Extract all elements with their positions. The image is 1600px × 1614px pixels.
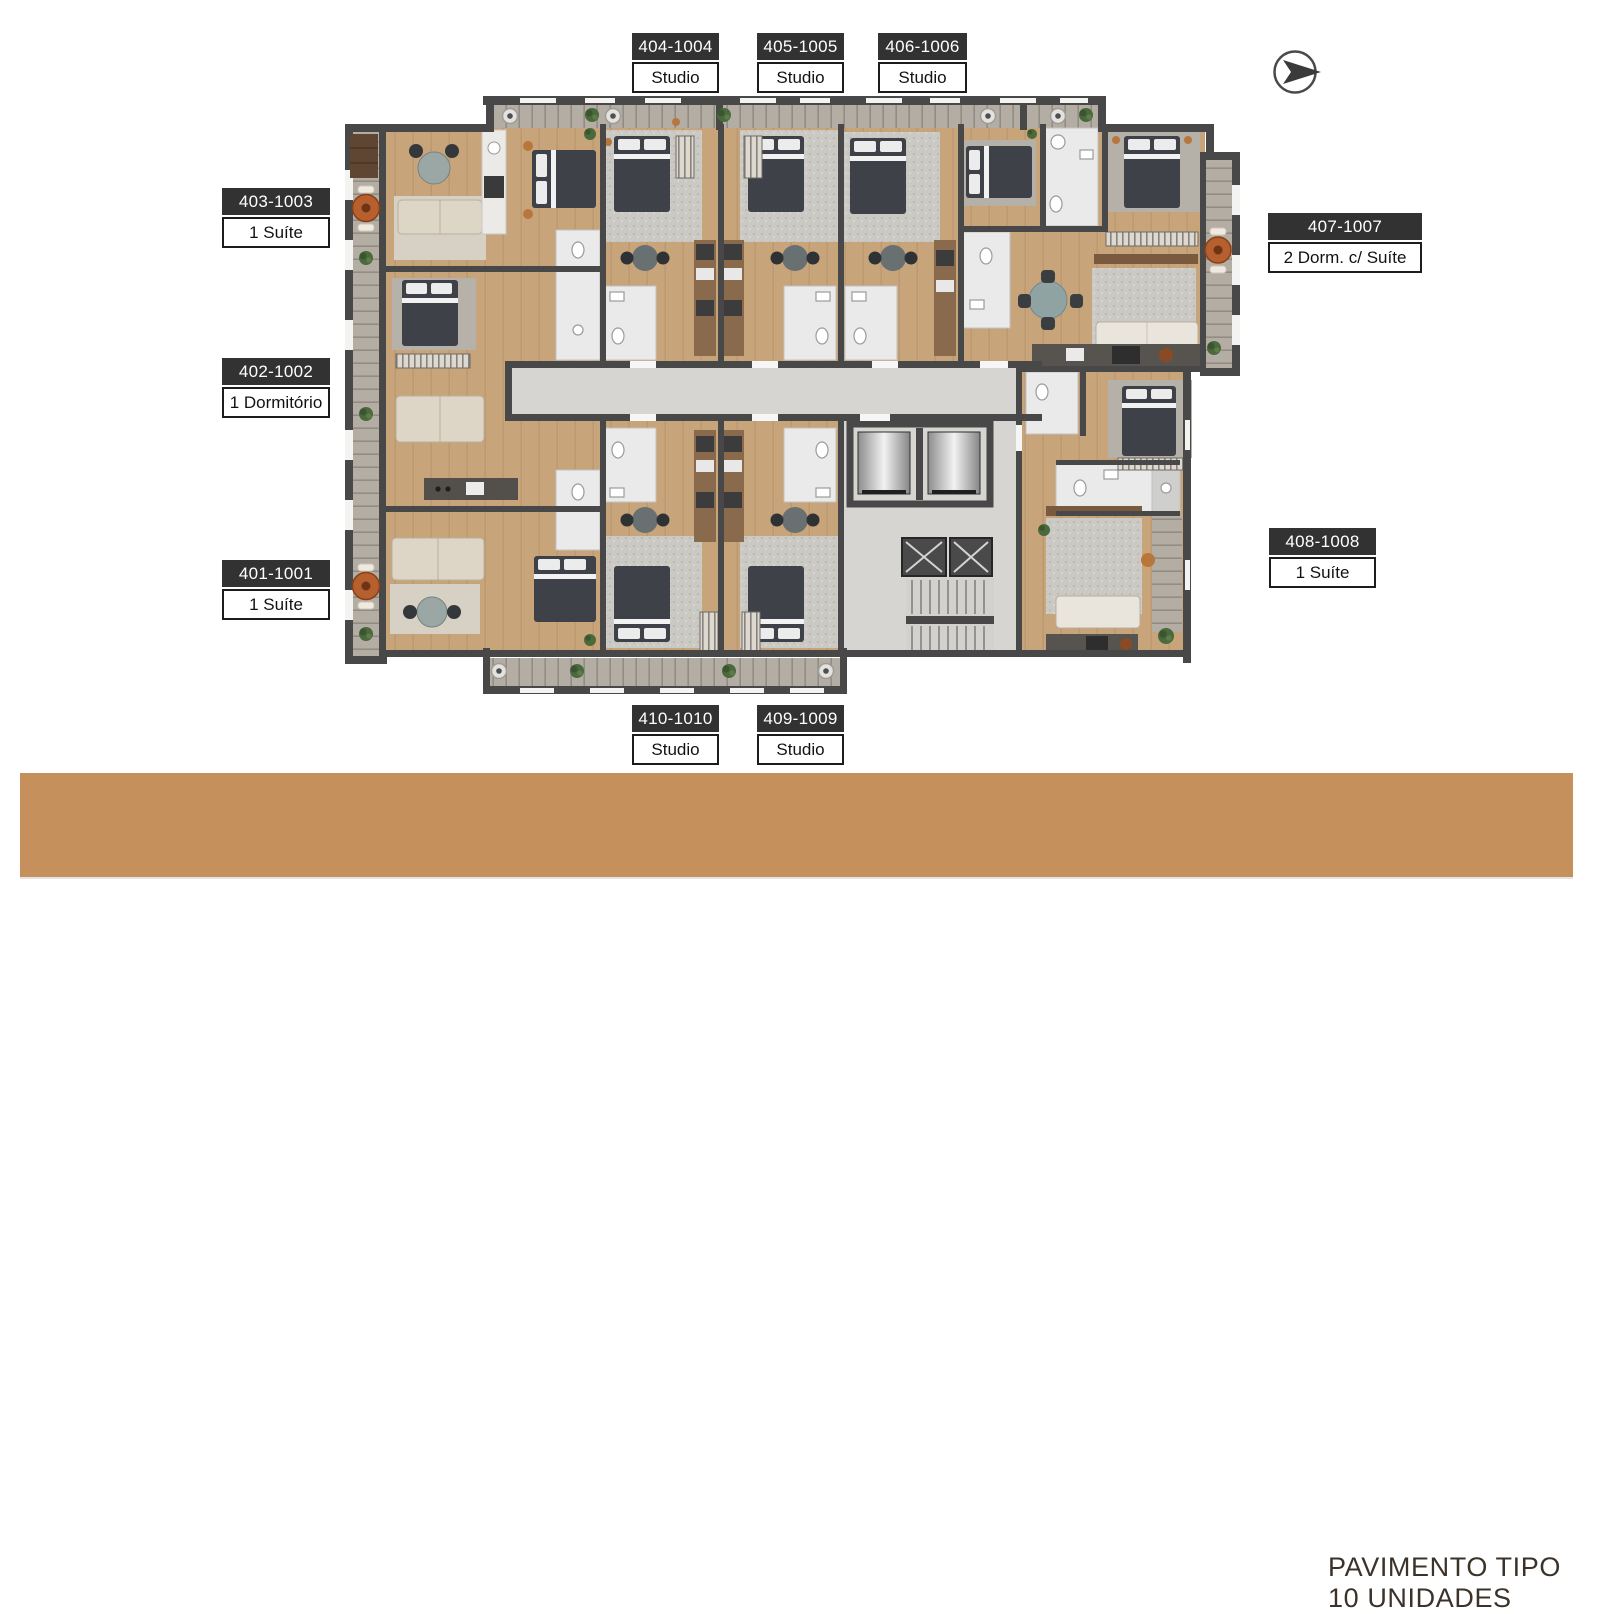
unit-type: 1 Suíte [222,217,330,248]
footer-caption: PAVIMENTO TIPO 10 UNIDADES [1328,1552,1561,1614]
unit-type: 2 Dorm. c/ Suíte [1268,242,1422,273]
footer-bar: PAVIMENTO TIPO 10 UNIDADES [20,773,1573,877]
bed [966,146,1032,198]
unit-type: Studio [757,62,844,93]
elevators [850,424,990,504]
unit-id: 410-1010 [632,705,719,732]
unit-label-410-1010: 410-1010 Studio [632,705,719,765]
unit-id: 407-1007 [1268,213,1422,240]
unit-label-406-1006: 406-1006 Studio [878,33,967,93]
unit-label-403-1003: 403-1003 1 Suíte [222,188,330,248]
bed [1124,136,1180,208]
unit-id: 409-1009 [757,705,844,732]
bed [534,556,596,622]
unit-type: Studio [632,734,719,765]
footer-line-1: PAVIMENTO TIPO [1328,1552,1561,1583]
unit-id: 403-1003 [222,188,330,215]
north-arrow-icon [1268,44,1326,100]
bed [850,138,906,214]
unit-id: 405-1005 [757,33,844,60]
bed [402,280,458,346]
bed [614,566,670,642]
floor-plan-page: 403-1003 1 Suíte 402-1002 1 Dormitório 4… [0,0,1600,900]
stairs [906,578,994,656]
bed [614,136,670,212]
bed [532,150,596,208]
unit-label-408-1008: 408-1008 1 Suíte [1269,528,1376,588]
unit-id: 408-1008 [1269,528,1376,555]
unit-id: 406-1006 [878,33,967,60]
unit-type: 1 Suíte [1269,557,1376,588]
unit-id: 404-1004 [632,33,719,60]
unit-type: 1 Suíte [222,589,330,620]
unit-label-404-1004: 404-1004 Studio [632,33,719,93]
unit-id: 402-1002 [222,358,330,385]
footer-line-2: 10 UNIDADES [1328,1583,1561,1614]
unit-id: 401-1001 [222,560,330,587]
unit-label-401-1001: 401-1001 1 Suíte [222,560,330,620]
floor-plan [340,88,1245,700]
unit-type: 1 Dormitório [222,387,330,418]
unit-type: Studio [757,734,844,765]
unit-type: Studio [632,62,719,93]
unit-label-405-1005: 405-1005 Studio [757,33,844,93]
tv-console [1094,254,1198,264]
unit-label-407-1007: 407-1007 2 Dorm. c/ Suíte [1268,213,1422,273]
unit-label-402-1002: 402-1002 1 Dormitório [222,358,330,418]
bed [1122,386,1176,456]
unit-label-409-1009: 409-1009 Studio [757,705,844,765]
shelf [350,134,378,178]
unit-type: Studio [878,62,967,93]
shafts [902,538,992,576]
